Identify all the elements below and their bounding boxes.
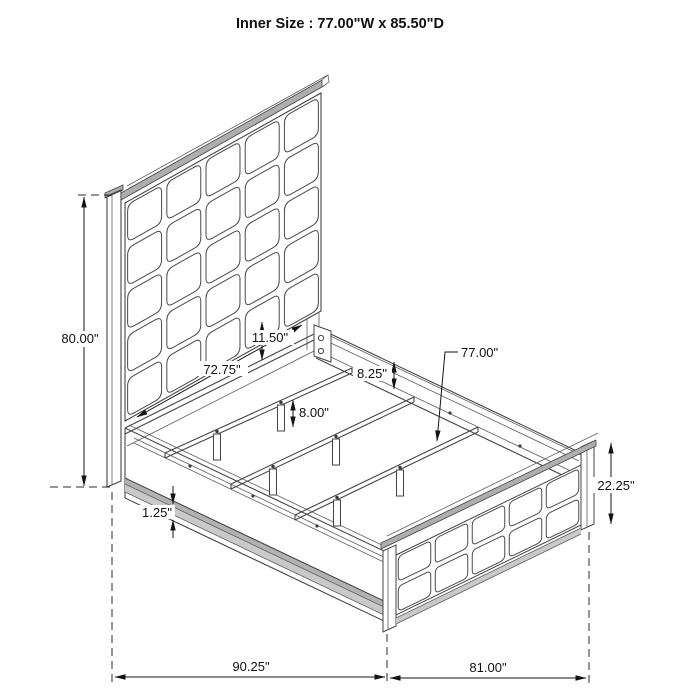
slat-system — [165, 368, 478, 526]
headboard-left-post — [107, 190, 121, 487]
dim-support-leg-height: 8.00" — [293, 400, 332, 427]
page-title: Inner Size : 77.00"W x 85.50"D — [236, 16, 444, 32]
dim-overall-width-label: 81.00" — [469, 660, 507, 675]
footboard-panel — [396, 465, 581, 615]
dim-support-leg-height-label: 8.00" — [299, 405, 329, 420]
headboard — [105, 75, 329, 487]
bed-isometric-drawing: 80.00" 72.75" 11.50" 8.25" 8.00" — [0, 0, 700, 700]
dim-slat-width-label: 77.00" — [461, 345, 499, 360]
dim-footboard-height: 22.25" — [593, 443, 639, 524]
dim-footboard-height-label: 22.25" — [597, 478, 635, 493]
dim-headboard-height-label: 80.00" — [61, 331, 99, 346]
dim-overall-depth-label: 90.25" — [232, 659, 270, 674]
dim-headboard-bottom-gap: 11.50" — [247, 322, 294, 360]
dim-side-rail-height-label: 8.25" — [357, 366, 387, 381]
footboard-far-post — [581, 441, 594, 530]
bed-dimension-diagram-page: 80.00" 72.75" 11.50" 8.25" 8.00" — [0, 0, 700, 700]
dim-side-rail-length-label: 72.75" — [203, 362, 241, 377]
headboard-top-cap — [121, 80, 322, 200]
dim-headboard-bottom-gap-label: 11.50" — [252, 330, 289, 345]
near-side-rail — [125, 428, 384, 551]
headboard-bracket — [314, 325, 331, 362]
footboard-near-post — [383, 545, 396, 632]
dim-base-trim-label: 1.25" — [142, 505, 172, 520]
dim-headboard-height: 80.00" — [50, 195, 112, 487]
dim-slat-width: 77.00" — [437, 345, 499, 441]
dimension-annotations: 80.00" 72.75" 11.50" 8.25" 8.00" — [50, 195, 639, 684]
